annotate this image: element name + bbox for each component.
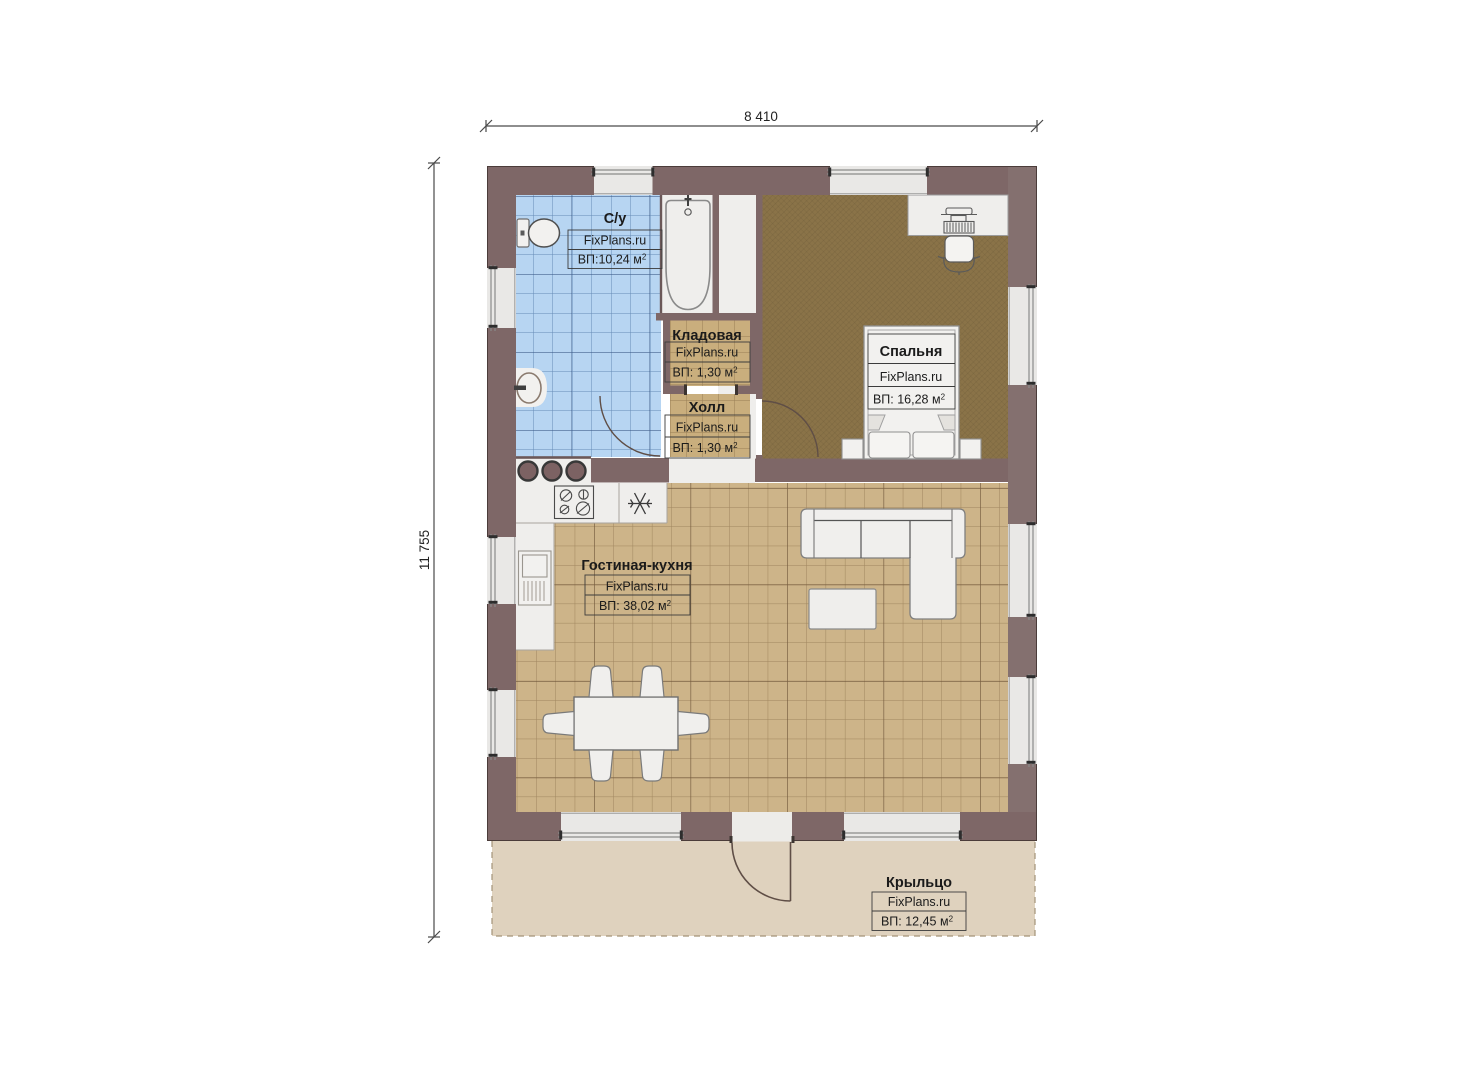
svg-text:ВП: 38,02 м2: ВП: 38,02 м2 <box>599 599 672 613</box>
svg-text:FixPlans.ru: FixPlans.ru <box>880 370 943 384</box>
svg-text:ВП: 1,30 м2: ВП: 1,30 м2 <box>672 366 738 380</box>
svg-text:Гостиная-кухня: Гостиная-кухня <box>581 558 692 574</box>
svg-text:ВП:10,24 м2: ВП:10,24 м2 <box>578 253 647 267</box>
svg-text:ВП: 16,28 м2: ВП: 16,28 м2 <box>873 393 946 407</box>
svg-text:С/у: С/у <box>604 211 627 227</box>
svg-text:8 410: 8 410 <box>744 109 778 124</box>
svg-text:FixPlans.ru: FixPlans.ru <box>888 895 951 909</box>
svg-text:FixPlans.ru: FixPlans.ru <box>606 580 669 594</box>
svg-text:FixPlans.ru: FixPlans.ru <box>584 234 647 248</box>
svg-text:Холл: Холл <box>689 400 725 416</box>
svg-text:ВП: 12,45 м2: ВП: 12,45 м2 <box>881 915 954 929</box>
svg-text:FixPlans.ru: FixPlans.ru <box>676 421 739 435</box>
svg-text:FixPlans.ru: FixPlans.ru <box>676 346 739 360</box>
svg-text:Крыльцо: Крыльцо <box>886 875 952 891</box>
svg-text:Спальня: Спальня <box>880 344 943 360</box>
svg-text:11 755: 11 755 <box>417 530 432 570</box>
svg-text:ВП: 1,30 м2: ВП: 1,30 м2 <box>672 441 738 455</box>
